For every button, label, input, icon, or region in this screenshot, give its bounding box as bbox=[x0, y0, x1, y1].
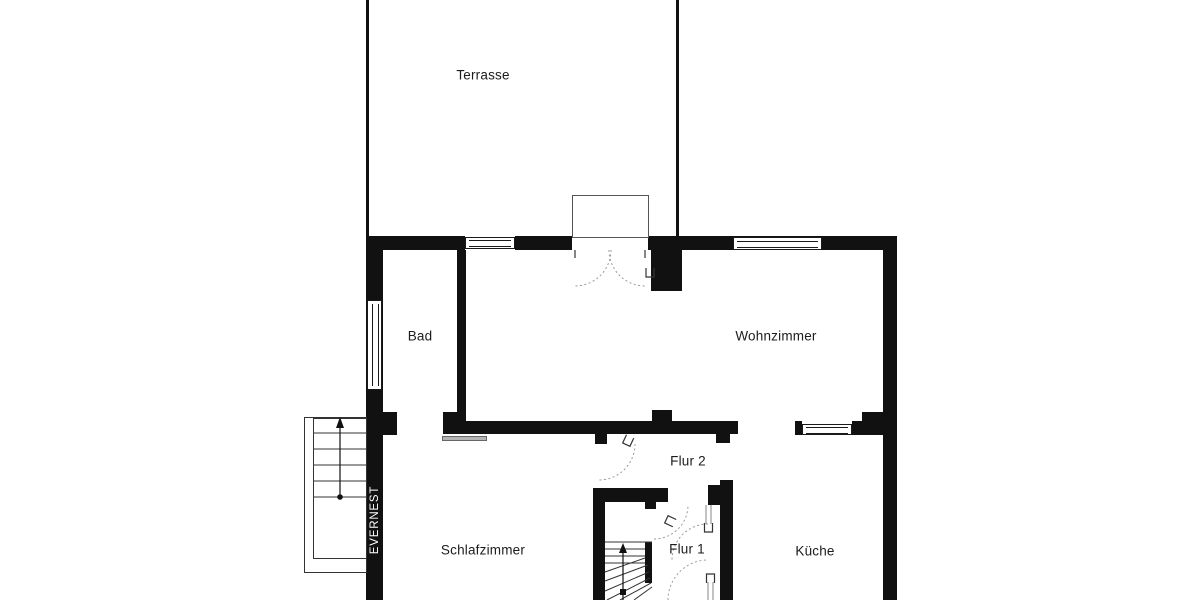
outdoor-stairs-inner bbox=[313, 418, 367, 559]
wall-terrace-left bbox=[366, 0, 369, 237]
room-label-wohnzimmer: Wohnzimmer bbox=[735, 329, 816, 344]
door-hinge-nub-kueche bbox=[716, 434, 730, 443]
wall-flur1-chunk bbox=[708, 485, 720, 505]
wall-flur1-right bbox=[720, 480, 733, 600]
wall-middle bbox=[466, 421, 738, 434]
room-label-schlafzimmer: Schlafzimmer bbox=[441, 543, 525, 558]
kueche-door-leaf-mark bbox=[707, 574, 715, 583]
wall-bad-right bbox=[457, 250, 466, 412]
door-hinge-nub-schlafzimmer bbox=[595, 434, 607, 444]
wall-kueche-block bbox=[795, 421, 802, 435]
window-kueche bbox=[802, 424, 852, 435]
wall-bad-bottom bbox=[443, 412, 466, 434]
window-bad-top bbox=[465, 237, 515, 249]
terrace-door-arc-right bbox=[609, 250, 645, 286]
room-label-flur1: Flur 1 bbox=[669, 542, 705, 557]
room-label-terrasse: Terrasse bbox=[456, 68, 509, 83]
floor-plan: Terrasse Bad Wohnzimmer Flur 2 Schlafzim… bbox=[0, 0, 1200, 600]
brand-watermark: EVERNEST bbox=[367, 470, 383, 570]
flur1-door-leaf-mark bbox=[705, 523, 713, 532]
sliding-door-threshold bbox=[442, 436, 487, 441]
window-pane bbox=[806, 427, 848, 434]
schlafzimmer-door-leaf-mark bbox=[623, 435, 634, 447]
open-door-leaves bbox=[706, 505, 713, 600]
window-bad-left bbox=[367, 300, 382, 390]
window-pane bbox=[469, 240, 511, 247]
wall-kueche-north bbox=[852, 421, 883, 435]
door-hinge-nub-stair bbox=[645, 502, 656, 509]
wall-pillar bbox=[651, 250, 682, 291]
room-label-kueche: Küche bbox=[795, 544, 834, 559]
wall-right-outer bbox=[883, 236, 897, 600]
room-label-bad: Bad bbox=[408, 329, 433, 344]
wall-left-nub bbox=[383, 412, 397, 435]
stair-door-arc bbox=[654, 505, 688, 539]
wall-middle-nub-up bbox=[652, 410, 672, 421]
stair-newel-bar bbox=[645, 542, 652, 583]
room-label-flur2: Flur 2 bbox=[670, 454, 706, 469]
wall-top-a bbox=[366, 236, 465, 250]
stair-door-leaf-mark bbox=[665, 516, 677, 527]
wall-terrace-right bbox=[676, 0, 679, 237]
schlafzimmer-door-arc bbox=[599, 444, 635, 480]
terrace-door-arc-left bbox=[575, 250, 611, 286]
wall-stair-top bbox=[593, 488, 668, 502]
terrace-door-frame bbox=[572, 195, 649, 238]
wall-top-b bbox=[515, 236, 572, 250]
indoor-stair-arrow bbox=[619, 543, 627, 600]
wall-stair-left bbox=[593, 502, 605, 600]
window-wohnzimmer bbox=[733, 237, 822, 250]
window-pane bbox=[737, 241, 818, 248]
kueche-door-arc bbox=[668, 560, 708, 600]
window-pane bbox=[372, 304, 379, 386]
